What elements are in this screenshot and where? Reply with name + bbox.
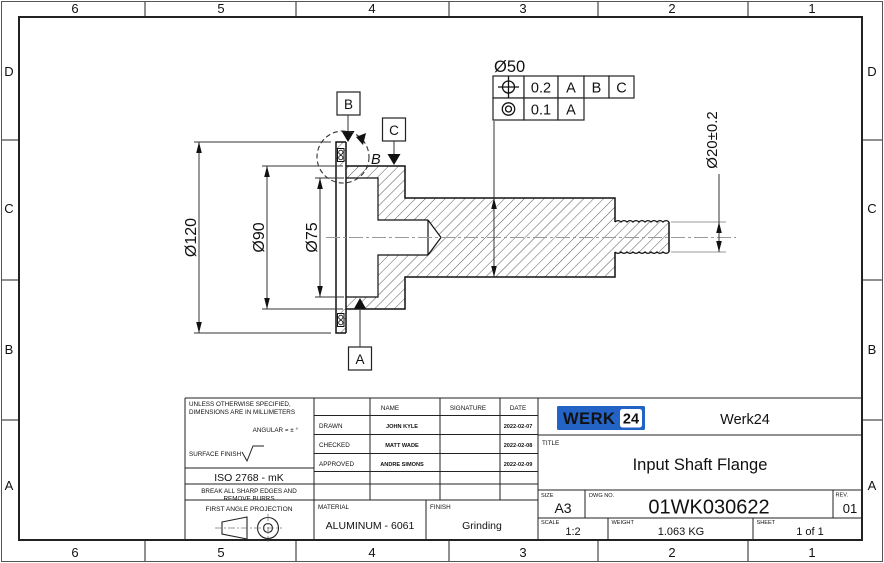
row-role: CHECKED	[319, 442, 350, 449]
zone-col-label: 2	[668, 545, 675, 560]
fcf-concentricity-datum-1: A	[566, 103, 576, 119]
zone-col-label: 3	[519, 545, 526, 560]
material-label: MATERIAL	[318, 504, 350, 511]
zone-col-label: 2	[668, 1, 675, 16]
size-label: SIZE	[541, 493, 554, 499]
zone-row-label: B	[5, 342, 14, 357]
zone-col-label: 4	[368, 545, 375, 560]
zone-row-label: D	[867, 64, 876, 79]
fcf-cell	[493, 98, 524, 120]
row-name: MATT WADE	[385, 443, 419, 449]
datum-c: C	[383, 118, 406, 165]
zone-row-label: B	[868, 342, 877, 357]
first-angle-projection-icon	[215, 514, 282, 542]
sheet-label: SHEET	[757, 520, 776, 526]
surface-finish-label: SURFACE FINISH	[189, 451, 242, 458]
logo-badge-text: 24	[623, 412, 639, 428]
row-date: 2022-02-09	[504, 462, 533, 468]
notes-line1: UNLESS OTHERWISE SPECIFIED,	[189, 401, 291, 408]
size-value: A3	[554, 500, 571, 516]
weight-label: WEIGHT	[612, 520, 635, 526]
row-name: JOHN KYLE	[386, 424, 418, 430]
rev-value: 01	[843, 501, 857, 516]
zone-col-label: 1	[808, 545, 815, 560]
logo-text: WERK	[563, 410, 615, 428]
column-header-date: DATE	[510, 405, 526, 412]
zone-col-label: 3	[519, 1, 526, 16]
zone-row-label: D	[4, 64, 13, 79]
outer-border	[2, 2, 883, 562]
deburr-note-line2: REMOVE BURRS	[223, 496, 274, 503]
zone-row-label: C	[4, 201, 13, 216]
sheet-value: 1 of 1	[796, 526, 824, 538]
zone-col-label: 4	[368, 1, 375, 16]
rev-label: REV.	[836, 493, 849, 499]
zone-col-label: 6	[71, 545, 78, 560]
deburr-note-line1: BREAK ALL SHARP EDGES AND	[201, 488, 297, 495]
sheet-border	[2, 2, 883, 562]
scale-label: SCALE	[541, 520, 560, 526]
drawing-sheet: 6 5 4 3 2 1 6 5 4 3 2 1 D C B A D C B A	[0, 0, 884, 563]
scale-value: 1:2	[565, 526, 580, 538]
seal-groove-bottom	[338, 314, 345, 327]
zone-col-label: 5	[217, 545, 224, 560]
titleblock: UNLESS OTHERWISE SPECIFIED, DIMENSIONS A…	[185, 398, 862, 542]
gdt-frames: Ø50 0.2 A B C 0.1 A	[493, 58, 634, 120]
fcf-position-datum-1: A	[566, 81, 576, 97]
zone-row-label: A	[5, 478, 14, 493]
row-date: 2022-02-08	[504, 443, 533, 449]
column-header-signature: SIGNATURE	[450, 405, 486, 412]
dim-d20-label: Ø20±0.2	[704, 111, 721, 168]
thread-crest-top	[615, 221, 669, 222]
dwg-no-value: 01WK030622	[648, 497, 769, 519]
werk24-logo: WERK 24	[557, 406, 645, 430]
dim-d120-label: Ø120	[183, 218, 200, 257]
company-name: Werk24	[720, 412, 770, 428]
dim-d75-label: Ø75	[304, 222, 321, 252]
fcf-position-datum-3: C	[616, 81, 626, 97]
zone-col-label: 6	[71, 1, 78, 16]
dim-d90-label: Ø90	[251, 222, 268, 252]
thread-crest-bottom	[615, 252, 669, 253]
dim-d20: Ø20±0.2	[671, 111, 726, 252]
angular-tolerance-note: ANGULAR = ± °	[253, 426, 299, 434]
datum-b-label: B	[344, 97, 353, 112]
tolerance-standard: ISO 2768 - mK	[214, 472, 283, 484]
dim-d50-label: Ø50	[494, 58, 525, 76]
engineering-drawing: 6 5 4 3 2 1 6 5 4 3 2 1 D C B A D C B A	[0, 0, 884, 563]
zone-col-label: 1	[808, 1, 815, 16]
row-date: 2022-02-07	[504, 424, 533, 430]
row-role: DRAWN	[319, 423, 343, 430]
finish-label: FINISH	[430, 504, 451, 511]
datum-triangle-icon	[388, 154, 401, 165]
projection-label: FIRST ANGLE PROJECTION	[205, 506, 292, 513]
surface-finish-icon	[242, 446, 264, 461]
seal-groove-top	[338, 149, 345, 162]
finish-value: Grinding	[462, 520, 502, 532]
fcf-concentricity-tolerance: 0.1	[531, 103, 551, 119]
datum-a-label: A	[355, 352, 364, 367]
fcf-position-datum-2: B	[592, 81, 602, 97]
zone-row-label: C	[867, 201, 876, 216]
zone-row-label: A	[868, 478, 877, 493]
material-value: ALUMINUM - 6061	[326, 520, 415, 532]
row-role: APPROVED	[319, 461, 354, 468]
datum-c-label: C	[389, 123, 399, 138]
title-label: TITLE	[542, 440, 559, 447]
column-header-name: NAME	[381, 405, 399, 412]
weight-value: 1.063 KG	[658, 526, 704, 538]
fcf-position-tolerance: 0.2	[531, 81, 551, 97]
detail-label: B	[371, 152, 381, 168]
zone-ticks	[2, 2, 882, 561]
row-name: ANDRE SIMONS	[380, 462, 424, 468]
zone-col-label: 5	[217, 1, 224, 16]
notes-line2: DIMENSIONS ARE IN MILLIMETERS	[189, 409, 295, 416]
dwg-no-label: DWG NO.	[589, 493, 615, 499]
drawing-title: Input Shaft Flange	[633, 456, 768, 474]
part-section-view	[326, 142, 736, 333]
datum-b: B	[337, 92, 360, 142]
